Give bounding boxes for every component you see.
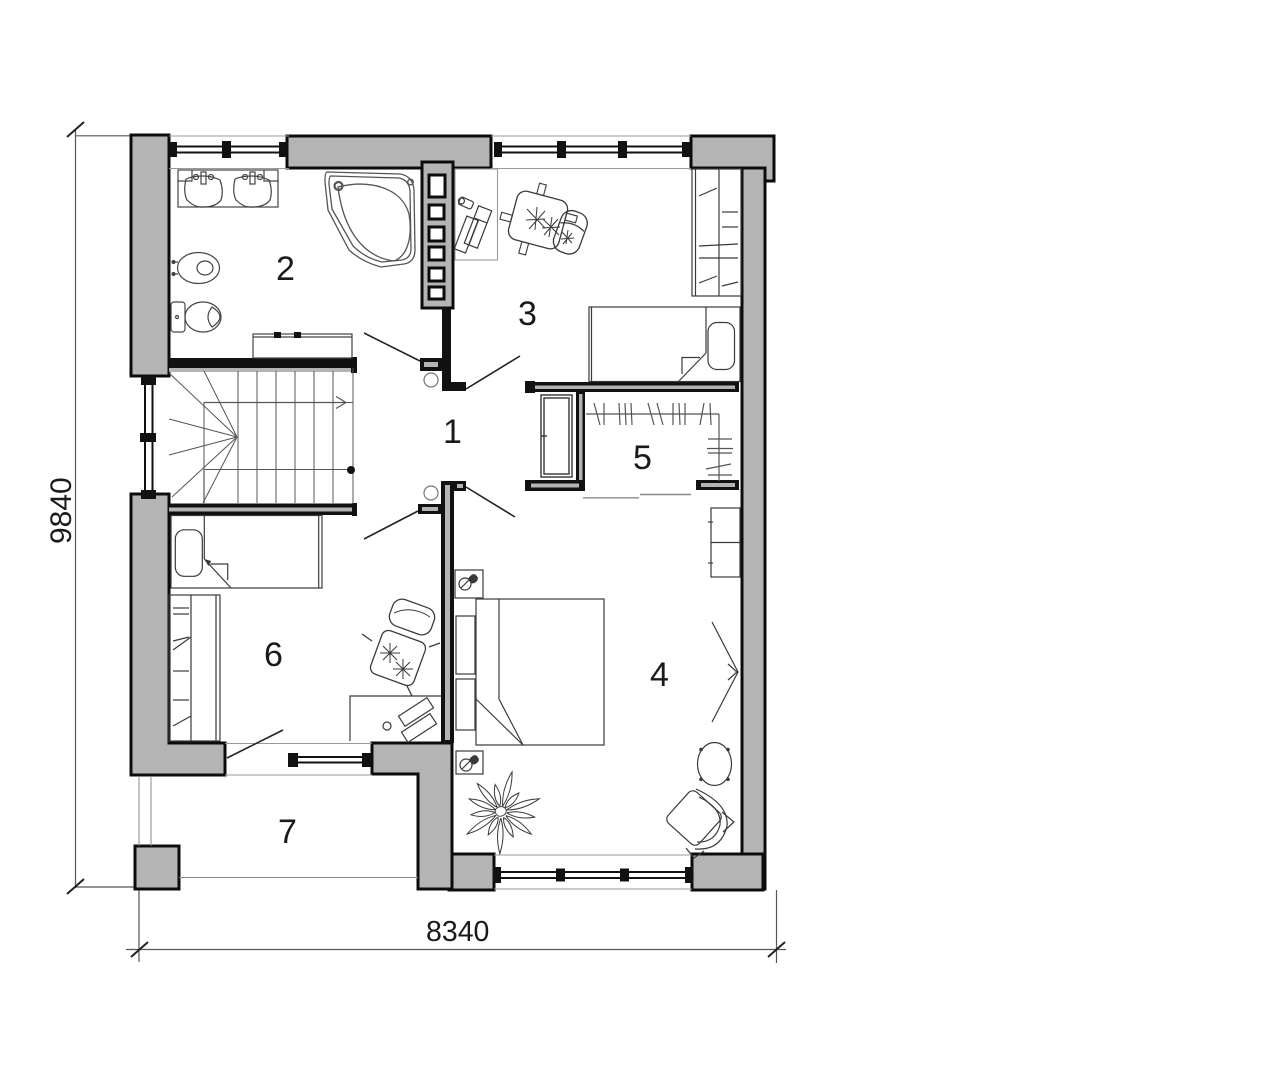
svg-text:3: 3 [518, 295, 537, 333]
svg-text:2: 2 [276, 250, 295, 288]
svg-text:4: 4 [650, 656, 669, 694]
svg-text:6: 6 [264, 636, 283, 674]
svg-text:5: 5 [633, 439, 652, 477]
svg-text:8340: 8340 [426, 916, 489, 948]
svg-text:1: 1 [443, 413, 462, 451]
svg-text:9840: 9840 [45, 477, 78, 544]
svg-text:7: 7 [278, 813, 297, 851]
